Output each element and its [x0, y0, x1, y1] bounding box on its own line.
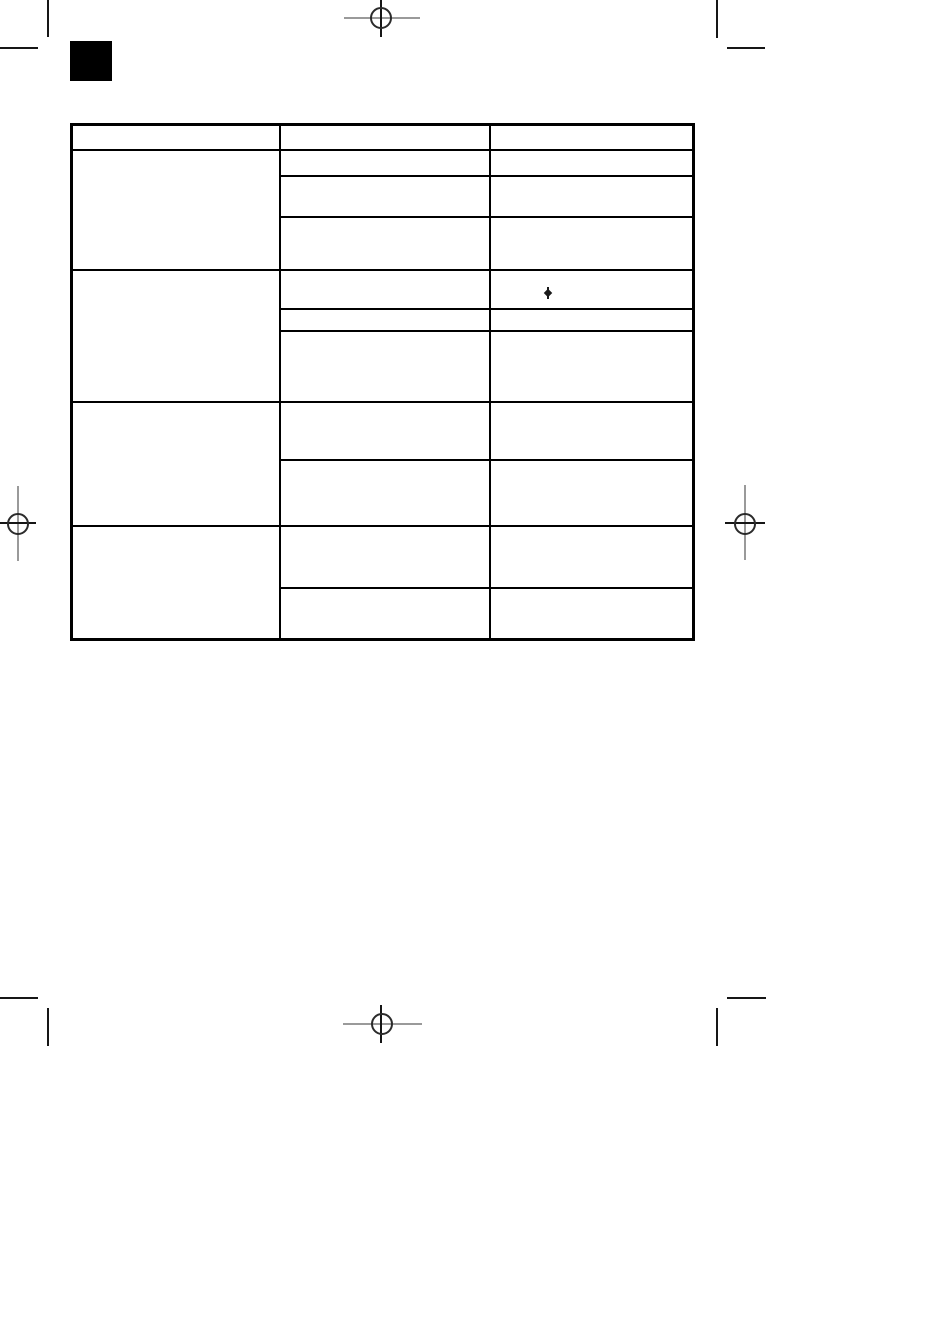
- section1-left-cell: [72, 150, 280, 270]
- table-row: [72, 402, 694, 460]
- section2-row3-right-cell: [490, 331, 694, 402]
- section4-row2-right-cell: [490, 588, 694, 640]
- section1-row2-right-cell: [490, 176, 694, 217]
- section3-row1-middle-cell: [280, 402, 490, 460]
- top-left-horizontal-tick-icon: [0, 47, 38, 49]
- section4-row1-middle-cell: [280, 526, 490, 588]
- section1-row2-middle-cell: [280, 176, 490, 217]
- registration-circle-icon: [7, 513, 29, 535]
- bottom-right-vertical-tick-icon: [716, 1008, 718, 1046]
- section3-left-cell: [72, 402, 280, 526]
- header-cell-col3: [490, 125, 694, 150]
- section2-row2-right-cell: [490, 309, 694, 331]
- section1-row3-right-cell: [490, 217, 694, 270]
- registration-circle-icon: [734, 513, 756, 535]
- top-right-vertical-tick-icon: [716, 0, 718, 38]
- stray-ink-diamond: [543, 288, 551, 296]
- section3-row1-right-cell: [490, 402, 694, 460]
- thumb-index-tab: [70, 41, 112, 81]
- section4-row1-right-cell: [490, 526, 694, 588]
- registration-circle-icon: [371, 1013, 393, 1035]
- section2-row1-right-cell: [490, 270, 694, 309]
- header-cell-col2: [280, 125, 490, 150]
- section4-left-cell: [72, 526, 280, 640]
- section4-row2-middle-cell: [280, 588, 490, 640]
- section2-row2-middle-cell: [280, 309, 490, 331]
- section2-row1-middle-cell: [280, 270, 490, 309]
- stray-ink-mark-icon: [544, 287, 552, 299]
- scanned-page: [0, 0, 950, 1344]
- table-row: [72, 150, 694, 176]
- top-left-vertical-tick-icon: [47, 0, 49, 37]
- bottom-left-horizontal-tick-icon: [0, 997, 38, 999]
- section1-row3-middle-cell: [280, 217, 490, 270]
- section1-row1-right-cell: [490, 150, 694, 176]
- table-row: [72, 125, 694, 150]
- section2-row3-middle-cell: [280, 331, 490, 402]
- registration-circle-icon: [370, 7, 392, 29]
- section3-row2-middle-cell: [280, 460, 490, 526]
- table-row: [72, 270, 694, 309]
- table-row: [72, 526, 694, 588]
- section3-row2-right-cell: [490, 460, 694, 526]
- section2-left-cell: [72, 270, 280, 402]
- bottom-left-vertical-tick-icon: [47, 1008, 49, 1046]
- header-cell-col1: [72, 125, 280, 150]
- top-right-horizontal-tick-icon: [727, 47, 765, 49]
- troubleshooting-table: [70, 123, 695, 641]
- bottom-right-horizontal-tick-icon: [727, 997, 766, 999]
- section1-row1-middle-cell: [280, 150, 490, 176]
